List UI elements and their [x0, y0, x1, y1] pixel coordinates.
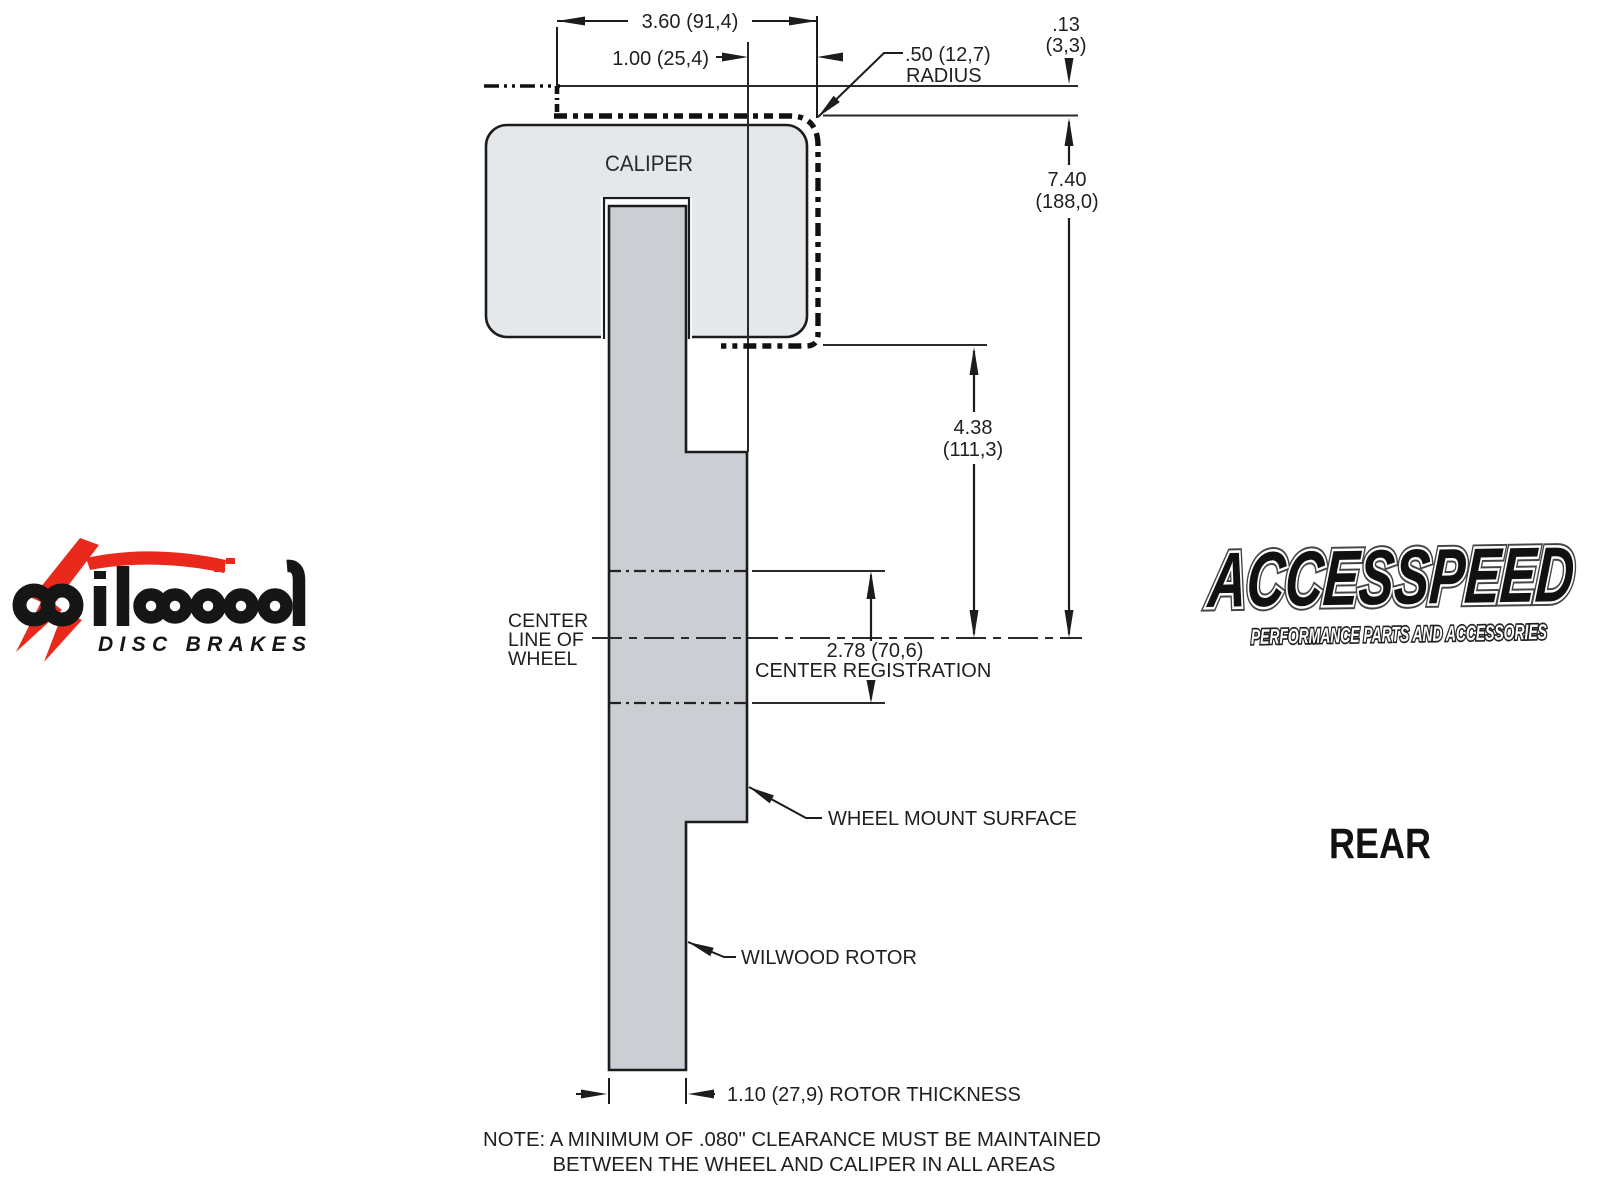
svg-text:(188,0): (188,0): [1035, 191, 1098, 213]
svg-text:7.40: 7.40: [1048, 169, 1087, 191]
svg-text:RADIUS: RADIUS: [906, 65, 982, 87]
svg-text:1.00 (25,4): 1.00 (25,4): [612, 48, 709, 70]
svg-text:2.78 (70,6): 2.78 (70,6): [827, 640, 924, 662]
svg-text:WHEEL: WHEEL: [508, 648, 578, 670]
svg-text:WILWOOD ROTOR: WILWOOD ROTOR: [741, 947, 917, 969]
svg-text:(3,3): (3,3): [1045, 35, 1086, 57]
svg-text:4.38: 4.38: [954, 417, 993, 439]
svg-text:BETWEEN THE WHEEL AND CALIPER: BETWEEN THE WHEEL AND CALIPER IN ALL ARE…: [553, 1154, 1056, 1176]
svg-text:3.60 (91,4): 3.60 (91,4): [642, 11, 739, 33]
svg-text:CENTER REGISTRATION: CENTER REGISTRATION: [755, 660, 991, 682]
svg-text:.50 (12,7): .50 (12,7): [905, 44, 991, 66]
svg-text:REAR: REAR: [1329, 820, 1431, 868]
svg-text:.13: .13: [1052, 14, 1080, 36]
svg-text:(111,3): (111,3): [943, 439, 1003, 461]
svg-text:WHEEL MOUNT SURFACE: WHEEL MOUNT SURFACE: [828, 808, 1077, 830]
svg-text:CALIPER: CALIPER: [605, 151, 693, 176]
svg-text:ACCESSPEED: ACCESSPEED: [1204, 531, 1577, 625]
svg-text:NOTE: A MINIMUM OF .080" CLEAR: NOTE: A MINIMUM OF .080" CLEARANCE MUST …: [483, 1129, 1101, 1151]
svg-text:1.10 (27,9) ROTOR THICKNESS: 1.10 (27,9) ROTOR THICKNESS: [727, 1084, 1021, 1106]
